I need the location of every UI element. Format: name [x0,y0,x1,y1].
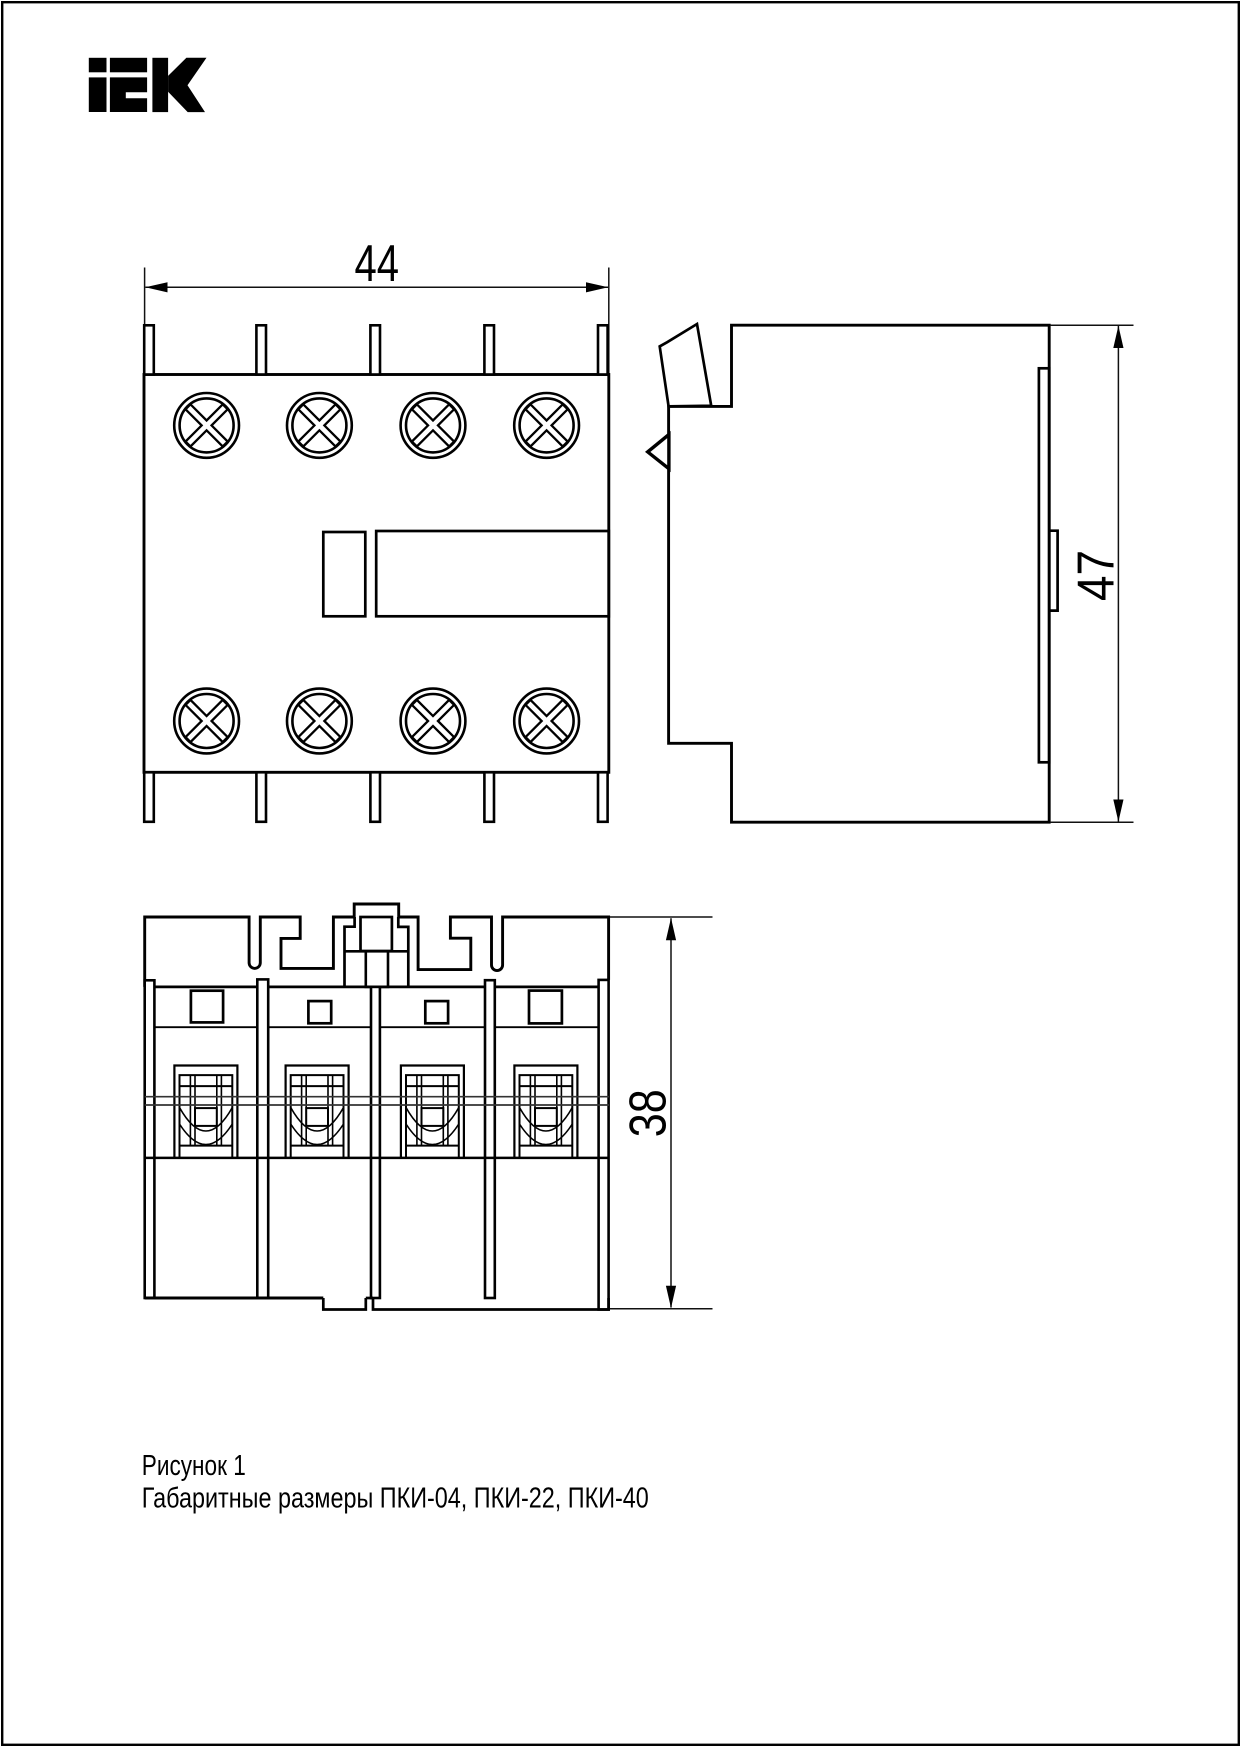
svg-text:Рисунок 1: Рисунок 1 [142,1450,246,1482]
svg-text:47: 47 [1067,550,1125,601]
svg-text:44: 44 [355,235,400,293]
svg-text:38: 38 [619,1089,677,1137]
svg-text:Габаритные размеры ПКИ-04, ПКИ: Габаритные размеры ПКИ-04, ПКИ-22, ПКИ-4… [142,1483,649,1515]
